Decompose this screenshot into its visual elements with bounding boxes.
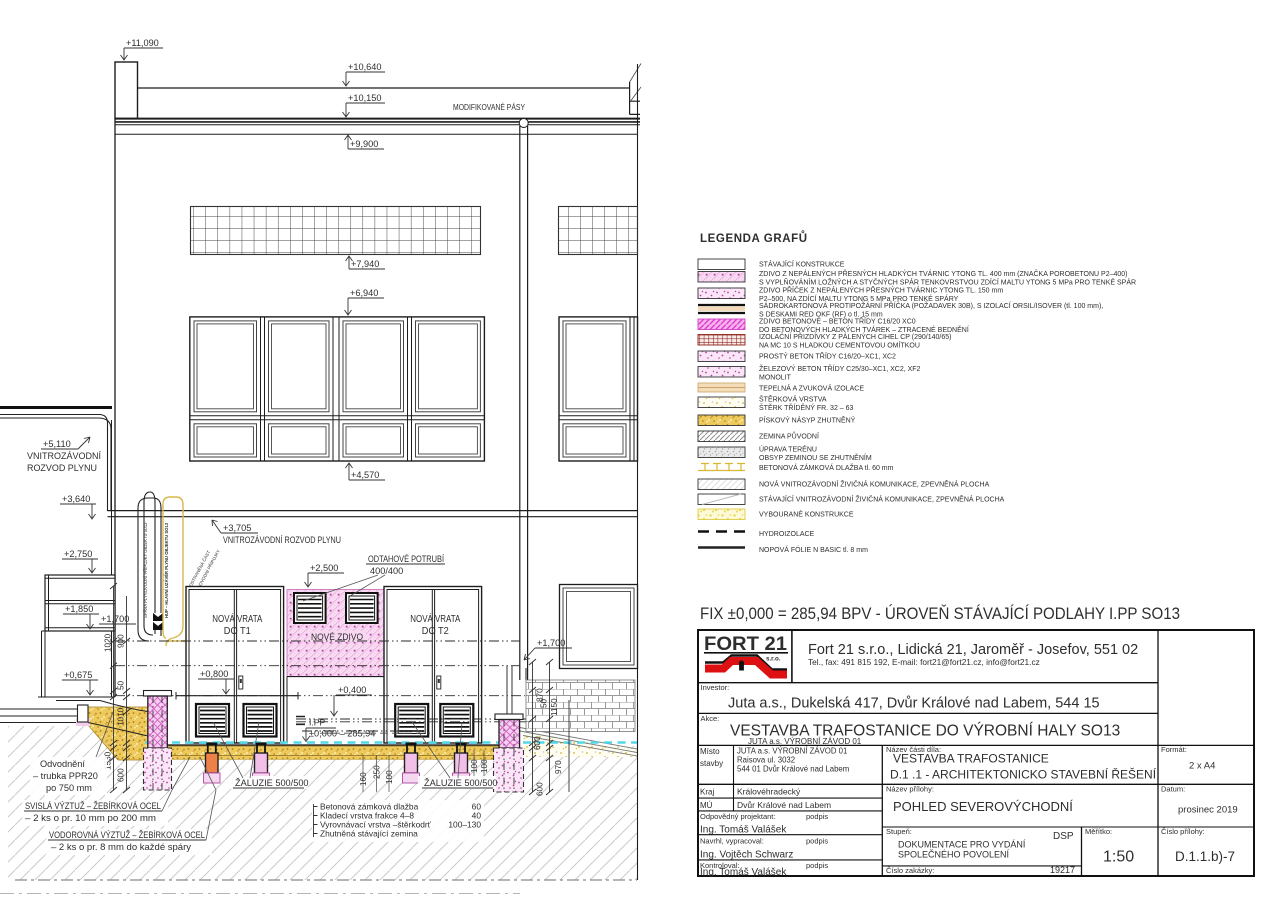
svg-text:STÁVAJÍCÍ KONSTRUKCE: STÁVAJÍCÍ KONSTRUKCE: [759, 260, 845, 269]
svg-text:podpis: podpis: [806, 812, 828, 821]
svg-text:HUP – HLAVNÍ UZÁVĚR PLYNU OBJE: HUP – HLAVNÍ UZÁVĚR PLYNU OBJEKTU SO13: [164, 522, 169, 618]
svg-text:+3,705: +3,705: [223, 523, 251, 533]
svg-text:160: 160: [359, 772, 368, 786]
svg-text:ÚPRAVA TERÉNU: ÚPRAVA TERÉNU: [759, 445, 817, 454]
svg-text:– 2 ks o pr. 8 mm do každé spá: – 2 ks o pr. 8 mm do každé spáry: [51, 842, 191, 852]
svg-text:Formát:: Formát:: [1161, 745, 1187, 754]
svg-text:Juta a.s., Dukelská 417, Dvůr: Juta a.s., Dukelská 417, Dvůr Králové na…: [728, 696, 1100, 712]
svg-text:VODOROVNÁ VÝZTUŽ – ŽEBÍRKOVÁ O: VODOROVNÁ VÝZTUŽ – ŽEBÍRKOVÁ OCEL: [49, 830, 205, 840]
svg-text:HYDROIZOLACE: HYDROIZOLACE: [759, 531, 815, 538]
svg-text:ZDIVO BETONOVÉ – BETON TŘÍDY C: ZDIVO BETONOVÉ – BETON TŘÍDY C16/20 XC0: [759, 317, 916, 326]
svg-text:ŽALUZIE 500/500: ŽALUZIE 500/500: [235, 778, 309, 788]
svg-text:MONOLIT: MONOLIT: [759, 375, 792, 382]
svg-text:+7,940: +7,940: [351, 259, 379, 269]
svg-text:s.r.o.: s.r.o.: [766, 656, 781, 663]
svg-text:1:50: 1:50: [1103, 849, 1134, 866]
svg-text:250: 250: [373, 765, 382, 779]
svg-text:Ing. Vojtěch Schwarz: Ing. Vojtěch Schwarz: [700, 850, 793, 861]
svg-text:Číslo přílohy:: Číslo přílohy:: [1161, 827, 1205, 836]
svg-text:NA MC 10 S HLADKOU CEMENTOVOU: NA MC 10 S HLADKOU CEMENTOVOU OMÍTKOU: [759, 341, 920, 350]
svg-text:100: 100: [470, 759, 479, 773]
svg-text:+0,400: +0,400: [338, 685, 366, 695]
svg-text:FIX ±0,000 = 285,94 BPV - ÚROV: FIX ±0,000 = 285,94 BPV - ÚROVEŇ STÁVAJÍ…: [700, 604, 1180, 623]
svg-text:100: 100: [480, 759, 489, 773]
svg-text:+5,110: +5,110: [43, 439, 71, 449]
svg-text:NOVÁ VRATA: NOVÁ VRATA: [410, 612, 460, 625]
svg-text:podpis: podpis: [806, 861, 828, 870]
svg-text:VESTAVBA TRAFOSTANICE: VESTAVBA TRAFOSTANICE: [893, 752, 1049, 766]
svg-text:Raisova ul. 3032: Raisova ul. 3032: [737, 756, 795, 765]
svg-text:+10,640: +10,640: [348, 62, 381, 72]
svg-text:ZEMINA PŮVODNÍ: ZEMINA PŮVODNÍ: [759, 432, 819, 441]
svg-text:OBSYP ZEMINOU SE ZHUTNĚNÍM: OBSYP ZEMINOU SE ZHUTNĚNÍM: [759, 453, 872, 462]
svg-text:+2,500: +2,500: [310, 563, 338, 573]
svg-text:ŽELEZOVÝ BETON TŘÍDY C25/30–XC: ŽELEZOVÝ BETON TŘÍDY C25/30–XC1, XC2, XF…: [759, 364, 921, 373]
svg-text:ŠTĚRKOVÁ VRSTVA: ŠTĚRKOVÁ VRSTVA: [759, 395, 827, 404]
svg-text:100: 100: [385, 770, 394, 784]
svg-text:D.1 .1 - ARCHITEKTONICKO STAVE: D.1 .1 - ARCHITEKTONICKO STAVEBNÍ ŘEŠENÍ: [890, 767, 1157, 782]
svg-text:– 2 ks o pr. 10 mm po 200 mm: – 2 ks o pr. 10 mm po 200 mm: [25, 813, 156, 823]
svg-text:+4,570: +4,570: [351, 470, 379, 480]
svg-text:SPOLEČNÉHO POVOLENÍ: SPOLEČNÉHO POVOLENÍ: [898, 850, 1010, 860]
svg-text:+2,750: +2,750: [64, 549, 92, 559]
svg-text:DO T1: DO T1: [224, 626, 251, 637]
svg-text:IZOLAČNÍ PŘIZDÍVKY Z PÁLENÝCH: IZOLAČNÍ PŘIZDÍVKY Z PÁLENÝCH CIHEL CP (…: [759, 332, 951, 341]
svg-text:BETONOVÁ ZÁMKOVÁ DLAŽBA tl. 60: BETONOVÁ ZÁMKOVÁ DLAŽBA tl. 60 mm: [759, 463, 894, 472]
svg-text:+9,900: +9,900: [350, 139, 378, 149]
svg-text:+1,700: +1,700: [537, 638, 565, 648]
svg-text:50: 50: [540, 698, 549, 708]
svg-text:I.PP: I.PP: [309, 718, 326, 728]
svg-text:+3,640: +3,640: [62, 494, 90, 504]
svg-text:+1,850: +1,850: [65, 604, 93, 614]
svg-text:Odvodnění: Odvodnění: [40, 759, 85, 769]
svg-text:ZDIVO Z NEPÁLENÝCH PŘESNÝCH HL: ZDIVO Z NEPÁLENÝCH PŘESNÝCH HLADKÝCH TVÁ…: [759, 269, 1128, 278]
svg-text:Datum:: Datum:: [1161, 785, 1185, 794]
svg-text:Odpovědný projektant:: Odpovědný projektant:: [700, 812, 775, 821]
svg-text:ZDIVO PŘÍČEK Z NEPÁLENÝCH PŘES: ZDIVO PŘÍČEK Z NEPÁLENÝCH PŘESNÝCH TVÁRN…: [759, 286, 1003, 295]
svg-text:600: 600: [536, 782, 545, 796]
svg-text:Dvůr Králové nad Labem: Dvůr Králové nad Labem: [737, 800, 831, 810]
svg-text:ROZVOD PLYNU: ROZVOD PLYNU: [27, 463, 97, 473]
svg-text:VYBOURANÉ KONSTRUKCE: VYBOURANÉ KONSTRUKCE: [759, 510, 854, 519]
svg-text:970: 970: [554, 760, 563, 774]
svg-text:Ing. Tomáš Valášek: Ing. Tomáš Valášek: [700, 867, 787, 878]
svg-text:Akce:: Akce:: [701, 714, 720, 723]
svg-text:stavby: stavby: [700, 759, 723, 768]
svg-text:400/400: 400/400: [370, 566, 403, 576]
svg-text:Stupeň:: Stupeň:: [886, 827, 912, 836]
svg-text:Fort 21 s.r.o., Lidická 21, Ja: Fort 21 s.r.o., Lidická 21, Jaroměř - Jo…: [808, 642, 1138, 658]
svg-text:1010: 1010: [117, 707, 126, 726]
svg-text:1150: 1150: [550, 698, 559, 716]
svg-text:Název přílohy:: Název přílohy:: [886, 785, 934, 794]
svg-text:prosinec 2019: prosinec 2019: [1178, 805, 1238, 816]
svg-text:PROSTÝ BETON TŘÍDY C16/20–XC1,: PROSTÝ BETON TŘÍDY C16/20–XC1, XC2: [759, 352, 896, 361]
svg-text:VNITROZÁVODNÍ ROZVOD PLYNU: VNITROZÁVODNÍ ROZVOD PLYNU: [223, 535, 341, 545]
svg-text:VNITROZÁVODNÍ: VNITROZÁVODNÍ: [27, 451, 101, 461]
svg-text:SÁDROKARTONOVÁ PROTIPOŽÁRNÍ PŘ: SÁDROKARTONOVÁ PROTIPOŽÁRNÍ PŘÍČKA (POŽA…: [759, 301, 1103, 310]
svg-text:ŽALUZIE 500/500: ŽALUZIE 500/500: [424, 778, 498, 788]
svg-text:ŠTĚRK TŘÍDĚNÝ FR. 32 – 63: ŠTĚRK TŘÍDĚNÝ FR. 32 – 63: [759, 403, 854, 412]
svg-text:podpis: podpis: [806, 837, 828, 846]
svg-text:PÍSKOVÝ NÁSYP ZHUTNĚNÝ: PÍSKOVÝ NÁSYP ZHUTNĚNÝ: [759, 416, 856, 425]
svg-text:NOVÁ VNITROZÁVODNÍ ŽIVIČNÁ KOM: NOVÁ VNITROZÁVODNÍ ŽIVIČNÁ KOMUNIKACE, Z…: [759, 480, 990, 489]
svg-text:SPÁRA PLYNOVODNÍ PŘÍPOJKY OBJE: SPÁRA PLYNOVODNÍ PŘÍPOJKY OBJEKTU S013: [143, 522, 148, 618]
svg-text:P2–500, NA ZDÍCÍ MALTU YTONG 5: P2–500, NA ZDÍCÍ MALTU YTONG 5 MPa PRO T…: [759, 294, 959, 303]
svg-text:Místo: Místo: [700, 747, 720, 756]
svg-text:STÁVAJÍCÍ VNITROZÁVODNÍ ŽIVIČN: STÁVAJÍCÍ VNITROZÁVODNÍ ŽIVIČNÁ KOMUNIKA…: [759, 495, 1005, 504]
svg-text:+10,150: +10,150: [348, 93, 381, 103]
svg-text:+1,700: +1,700: [101, 614, 129, 624]
svg-text:100–130: 100–130: [448, 820, 481, 830]
svg-text:LEGENDA GRAFŮ: LEGENDA GRAFŮ: [700, 231, 808, 245]
svg-text:NOPOVÁ FÓLIE N BASIC tl. 8 mm: NOPOVÁ FÓLIE N BASIC tl. 8 mm: [759, 545, 868, 554]
svg-text:– trubka PPR20: – trubka PPR20: [33, 771, 98, 781]
svg-text:Zhutněná stávající zemina: Zhutněná stávající zemina: [320, 829, 418, 839]
svg-text:Královéhradecký: Královéhradecký: [737, 787, 801, 797]
svg-text:Navrhl, vypracoval:: Navrhl, vypracoval:: [700, 837, 764, 846]
svg-text:+0,800: +0,800: [200, 669, 228, 679]
svg-text:FORT 21: FORT 21: [704, 634, 787, 655]
svg-text:600: 600: [117, 768, 126, 782]
svg-text:544 01 Dvůr Králové nad Labem: 544 01 Dvůr Králové nad Labem: [737, 765, 849, 774]
svg-text:+0,675: +0,675: [64, 670, 92, 680]
svg-text:DOKUMENTACE PRO VYDÁNÍ: DOKUMENTACE PRO VYDÁNÍ: [898, 840, 1026, 850]
svg-text:JUTA a.s. VÝROBNÍ ZÁVOD 01: JUTA a.s. VÝROBNÍ ZÁVOD 01: [737, 747, 847, 756]
svg-text:Investor:: Investor:: [701, 683, 730, 692]
svg-text:19217: 19217: [1050, 865, 1075, 875]
svg-text:Měřítko:: Měřítko:: [1085, 827, 1112, 836]
svg-text:MÚ: MÚ: [700, 801, 713, 810]
svg-text:2 x A4: 2 x A4: [1189, 761, 1215, 772]
svg-text:Ing. Tomáš Valášek: Ing. Tomáš Valášek: [700, 825, 787, 836]
svg-text:JUTA a.s. VÝROBNÍ ZÁVOD 01: JUTA a.s. VÝROBNÍ ZÁVOD 01: [748, 737, 862, 746]
svg-text:1020: 1020: [104, 633, 113, 652]
svg-text:TEPELNÁ A ZVUKOVÁ IZOLACE: TEPELNÁ A ZVUKOVÁ IZOLACE: [759, 384, 864, 393]
svg-text:SVISLÁ VÝZTUŽ – ŽEBÍRKOVÁ OCEL: SVISLÁ VÝZTUŽ – ŽEBÍRKOVÁ OCEL: [25, 801, 161, 811]
svg-text:NOVÁ VRATA: NOVÁ VRATA: [212, 612, 262, 625]
svg-text:Kraj: Kraj: [700, 788, 714, 797]
svg-text:50: 50: [117, 680, 126, 690]
svg-text:po 750 mm: po 750 mm: [46, 783, 92, 793]
svg-text:DO T2: DO T2: [422, 626, 449, 637]
svg-text:DSP: DSP: [1053, 831, 1074, 842]
svg-text:900: 900: [117, 634, 126, 648]
svg-text:Číslo zakázky:: Číslo zakázky:: [886, 866, 934, 875]
svg-text:+6,940: +6,940: [350, 288, 378, 298]
svg-text:S VYPLŇOVÁNÍM LOŽNÝCH A STYČNÝ: S VYPLŇOVÁNÍM LOŽNÝCH A STYČNÝCH SPÁR TE…: [759, 278, 1136, 287]
svg-text:Tel., fax: 491 815 192, E-mai: Tel., fax: 491 815 192, E-mail: fort21@f…: [808, 657, 1040, 667]
svg-text:POHLED SEVEROVÝCHODNÍ: POHLED SEVEROVÝCHODNÍ: [893, 799, 1073, 814]
svg-text:ODTAHOVÉ POTRUBÍ: ODTAHOVÉ POTRUBÍ: [368, 554, 444, 564]
svg-text:D.1.1.b)-7: D.1.1.b)-7: [1175, 849, 1235, 864]
svg-text:+11,090: +11,090: [126, 38, 159, 48]
svg-text:MODIFIKOVANÉ PÁSY: MODIFIKOVANÉ PÁSY: [453, 102, 525, 112]
svg-text:600: 600: [533, 736, 542, 750]
svg-text:DO BETONOVÝCH HLADKÝCH TVÁREK: DO BETONOVÝCH HLADKÝCH TVÁREK – ZTRACENÉ…: [759, 325, 969, 334]
